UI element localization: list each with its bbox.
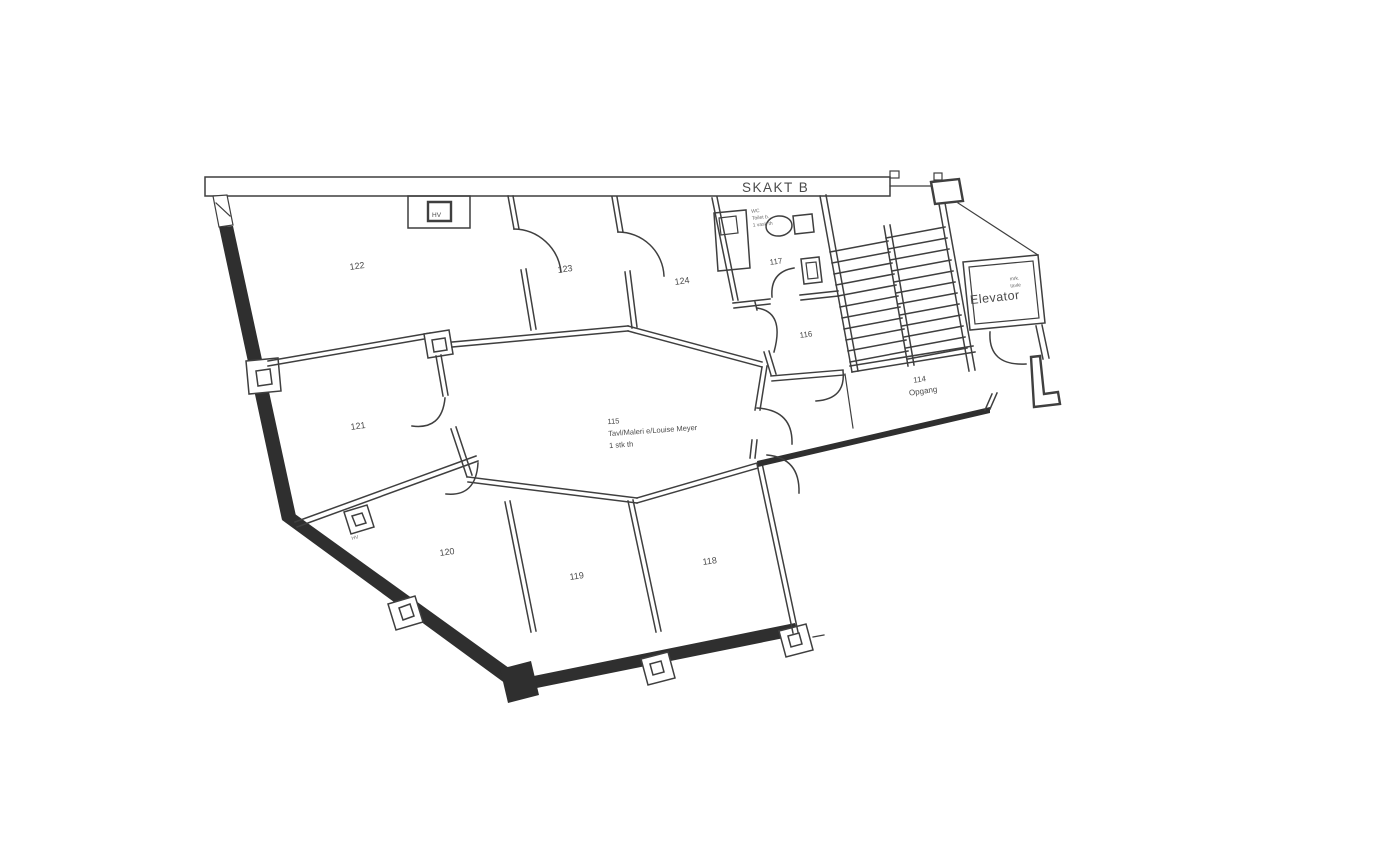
wall-120-119 <box>510 501 536 631</box>
floor-sink-box <box>801 257 822 284</box>
column-bottom-2 <box>779 624 813 657</box>
wall-123-124-upper <box>612 197 618 232</box>
stairwell-number: 114 <box>913 374 927 385</box>
wall-122-123-lower <box>521 270 531 330</box>
staircase <box>820 195 975 372</box>
shaft-band <box>205 171 1038 255</box>
wall-115-north-b <box>628 331 762 367</box>
door-121 <box>412 398 445 426</box>
stair-west-wall <box>820 196 852 372</box>
room-label-119: 119 <box>569 570 585 582</box>
floor-plan-drawing: SKAKT B 122 123 124 117 116 121 120 119 … <box>0 0 1400 856</box>
door-hall-to-114 <box>757 408 792 444</box>
fixtures <box>408 196 822 284</box>
plan-labels: SKAKT B 122 123 124 117 116 121 120 119 … <box>349 180 1022 582</box>
room-label-121: 121 <box>350 420 366 432</box>
room-label-123: 123 <box>557 263 573 275</box>
hv-wall-box <box>344 505 374 534</box>
column-top-right <box>931 179 963 204</box>
room-label-116: 116 <box>799 329 813 340</box>
wall-118-north <box>637 463 757 498</box>
door-120 <box>446 463 478 494</box>
room-115-note-line2: Tavl/Maleri e/Louise Meyer <box>608 423 698 438</box>
room-label-118: 118 <box>702 555 718 567</box>
wall-121-north <box>268 338 430 366</box>
room-115-note: 115 Tavl/Maleri e/Louise Meyer 1 stk th <box>607 411 699 450</box>
wc-note: WC Toilet b. 1 vask th <box>751 207 773 229</box>
room-label-122: 122 <box>349 260 365 272</box>
room-115-note-line3: 1 stk th <box>609 439 634 450</box>
door-arcs <box>412 229 1026 494</box>
stairwell-label: 114 Opgang <box>907 373 938 398</box>
wall-122-123-upper <box>508 196 514 229</box>
elevator-note-line1: mrk. <box>1009 276 1019 283</box>
wall-119-118 <box>633 500 661 631</box>
elevator-label: Elevator <box>969 288 1020 307</box>
wall-115-south <box>468 477 637 498</box>
wall-117-south-east <box>800 291 838 295</box>
wall-hall-west-lower <box>750 440 752 458</box>
elevator-note-line2: tavle <box>1010 282 1021 289</box>
wc-cistern <box>793 214 814 234</box>
room-label-124: 124 <box>674 275 690 287</box>
door-116-west <box>757 308 777 352</box>
door-116-117 <box>772 268 794 297</box>
exterior-walls <box>213 195 799 703</box>
floor-plan-page: SKAKT B 122 123 124 117 116 121 120 119 … <box>0 0 1400 856</box>
column-left-wall <box>246 358 281 394</box>
wall-114-west <box>845 374 853 428</box>
column-bottom-1 <box>641 652 675 685</box>
column-junction <box>424 330 453 358</box>
wall-right-lower <box>1042 325 1049 358</box>
stairwell-name: Opgang <box>908 385 937 398</box>
hv-cabinet-label: HV <box>432 212 442 219</box>
elevator-note: mrk. tavle <box>1009 275 1021 289</box>
door-122-123 <box>514 229 561 272</box>
wc-note-line3: 1 vask th <box>752 221 773 229</box>
room-label-115: 115 <box>607 416 620 426</box>
wc-note-line1: WC <box>751 208 760 215</box>
room-label-117: 117 <box>769 256 783 267</box>
door-elevator <box>990 332 1026 364</box>
shaft-label: SKAKT B <box>742 180 809 195</box>
stair-treads-right-flight <box>886 227 967 359</box>
hv-wall-label: HV <box>351 534 360 542</box>
wall-118-east <box>757 464 793 633</box>
door-123-124 <box>618 232 664 276</box>
wall-116-west-upper <box>755 302 757 310</box>
room-label-120: 120 <box>439 546 455 558</box>
wall-116-south <box>771 370 843 376</box>
wall-l-end <box>1031 356 1060 407</box>
